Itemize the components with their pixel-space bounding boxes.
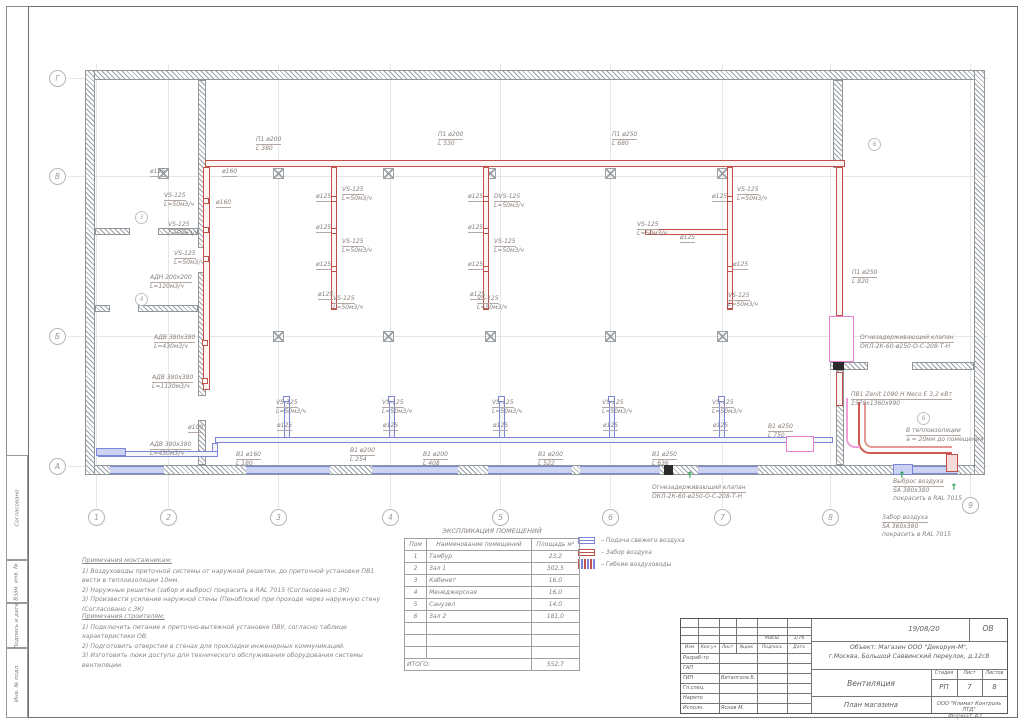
annotation-line: В теплоизоляции (906, 427, 961, 436)
annotation-line: VS-125 (737, 186, 759, 195)
titleblock-line (681, 703, 811, 704)
flex-duct-symbol (578, 559, 595, 569)
grid-bubble: 2 (160, 509, 177, 526)
annotation-line: L=50м3/ч (342, 247, 372, 254)
room-table-title: ЭКСПЛИКАЦИЯ ПОМЕЩЕНИЙ (404, 527, 580, 535)
annotation-line: L=50м3/ч (342, 195, 372, 202)
table-cell (531, 647, 579, 659)
titleblock-line (681, 673, 811, 674)
table-cell (405, 635, 427, 647)
table-row (405, 623, 580, 635)
drawing-title: План магазина (811, 701, 931, 709)
annotation-line: L=50м3/ч (737, 195, 767, 202)
titleblock-role: Нармто (683, 695, 718, 701)
annotation-label: VS-125L=50м3/ч (168, 221, 198, 238)
annotation-line: L=50м3/ч (494, 247, 524, 254)
annotation-label: ø125 (493, 422, 508, 431)
table-cell: Тамбур (427, 551, 532, 563)
annotation-label: VS-125L=50м3/ч (174, 250, 204, 267)
notes-line: 1) Воздуховоды приточной системы от нару… (82, 567, 392, 577)
total-value: 552,7 (531, 659, 579, 671)
titleblock-role: Гл.спец. (683, 685, 718, 691)
annotation-label: В1 ø250L 636 (652, 451, 677, 468)
annotation-label: Выброс воздухаSA 380х380покрасить в RAL … (893, 478, 962, 502)
room-explication-table: ЭКСПЛИКАЦИЯ ПОМЕЩЕНИЙ ПомНаименование по… (404, 527, 580, 671)
annotation-label: VS-125L=50м3/ч (342, 186, 372, 203)
annotation-label: VS-125L=50м3/ч (276, 399, 306, 416)
legend-label: – Забор воздуха (601, 549, 652, 556)
annotation-label: В1 ø250L 750 (768, 423, 793, 440)
doc-title: Вентиляция (811, 679, 931, 688)
annotation-label: ø125 (316, 261, 331, 270)
annotation-line: L=430м3/ч (154, 343, 188, 350)
annotation-line: L 408 (423, 460, 440, 467)
annotation-line: VS-125 (637, 221, 659, 230)
notes-title: Примечания строителям: (82, 612, 392, 622)
annotation-line: АДВ 380х380 (154, 334, 195, 343)
table-cell: 14,0 (531, 599, 579, 611)
stage-label: Стадия (931, 671, 957, 676)
annotation-label: ø125 (733, 261, 748, 270)
air-intake-grille (946, 454, 958, 472)
annotation-line: L=50м3/ч (712, 408, 742, 415)
annotation-label: ø125 (150, 168, 165, 177)
annotation-line: Выброс воздуха (893, 478, 944, 487)
notes-builders: Примечания строителям:1) Подключить пита… (82, 612, 392, 671)
wall-segment (85, 70, 95, 475)
annotation-line: АДВ 380х380 (150, 441, 191, 450)
grid-bubble: А (49, 458, 66, 475)
annotation-line: ø125 (712, 193, 727, 202)
annotation-line: L=430м3/ч (150, 450, 184, 457)
table-cell (427, 635, 532, 647)
annotation-line: АДН 200х200 (150, 274, 192, 283)
annotation-label: ø125 (316, 193, 331, 202)
grid-bubble: 5 (492, 509, 509, 526)
annotation-line: ø125 (316, 193, 331, 202)
annotation-line: L=50м3/ч (174, 259, 204, 266)
wall-segment (138, 305, 198, 312)
return-duct (212, 443, 218, 452)
annotation-line: VS-125 (164, 192, 186, 201)
title-date: 19/08/20 (881, 625, 967, 633)
table-cell: 16,0 (531, 575, 579, 587)
annotation-line: ø160 (222, 168, 237, 177)
table-cell: 1 (405, 551, 427, 563)
annotation-label: Забор воздухаSA 360х380покрасить в RAL 7… (882, 514, 951, 538)
grid-bubble: 8 (822, 509, 839, 526)
annotation-line: VS-125 (492, 399, 514, 408)
annotation-label: ПВ1 Zenit 1090 H Neco Е 3,2 кВт1570х1360… (851, 391, 952, 408)
annotation-line: ø125 (468, 261, 483, 270)
annotation-label: ø125 (680, 234, 695, 243)
annotation-line: VS-125 (342, 238, 364, 247)
grid-bubble: 1 (88, 509, 105, 526)
annotation-label: АДВ 380х380L=1130м3/ч (152, 374, 193, 391)
annotation-line: ø125 (316, 224, 331, 233)
titleblock-line (681, 653, 811, 654)
annotation-line: L=50м3/ч (602, 408, 632, 415)
grid-bubble: 7 (714, 509, 731, 526)
supply-duct-symbol (578, 537, 595, 544)
column (485, 331, 496, 342)
annotation-label: В1 ø200L 254 (350, 447, 375, 464)
titleblock-line (681, 663, 811, 664)
sheets-value: 8 (982, 683, 1007, 691)
annotation-label: ø125 (468, 224, 483, 233)
notes-line: вентиляции. (82, 661, 392, 671)
fire-damper (833, 362, 844, 370)
annotation-line: Огнезадерживающий клапан (652, 484, 746, 493)
table-cell (531, 635, 579, 647)
column (273, 168, 284, 179)
annotation-line: VS-125 (728, 292, 750, 301)
table-row: 6Зал 2181,0 (405, 611, 580, 623)
titleblock-line (681, 683, 811, 684)
table-total-row: ИТОГО:552,7 (405, 659, 580, 671)
legend-label: – Подача свежего воздуха (601, 537, 685, 544)
annotation-line: L 530 (438, 140, 455, 147)
table-cell: Кабинет (427, 575, 532, 587)
annotation-line: L 254 (350, 456, 367, 463)
annotation-label: VS-125L=50м3/ч (637, 221, 667, 238)
column (605, 331, 616, 342)
notes-title: Примечания монтажникам: (82, 556, 392, 566)
return-duct (215, 437, 833, 443)
window (110, 466, 164, 474)
annotation-line: ø125 (470, 291, 485, 300)
annotation-line: VS-125 (602, 399, 624, 408)
annotation-label: ø125 (318, 291, 333, 300)
table-cell (405, 647, 427, 659)
annotation-line: ø125 (316, 261, 331, 270)
table-row (405, 647, 580, 659)
annotation-label: VS-125L=50м3/ч (333, 295, 363, 312)
annotation-line: VS-125 (342, 186, 364, 195)
wall-segment (974, 70, 985, 475)
annotation-line: DVS-125 (494, 193, 520, 202)
table-row (405, 635, 580, 647)
sheets-label: Листов (982, 671, 1007, 676)
format-label: Формат А2 (948, 713, 982, 720)
legend: – Подача свежего воздуха– Забор воздуха–… (578, 534, 685, 570)
annotation-label: ø125 (383, 422, 398, 431)
annotation-line: SA 380х380 (893, 487, 929, 494)
object-line2: г.Москва, Большой Саввинский переулок, д… (813, 653, 1005, 660)
annotation-label: VS-125L=50м3/ч (164, 192, 194, 209)
annotation-line: АДВ 380х380 (152, 374, 193, 383)
supply-diffuser (331, 266, 337, 272)
annotation-label: ø100 (188, 424, 203, 433)
table-cell (427, 647, 532, 659)
annotation-label: АДВ 380х380L=430м3/ч (150, 441, 191, 458)
revision-header: Изм (681, 645, 698, 650)
annotation-label: П1 ø250L 820 (852, 269, 877, 286)
annotation-line: П1 ø200 (438, 131, 463, 140)
annotation-line: VS-125 (168, 221, 190, 230)
supply-duct (836, 167, 843, 316)
annotation-line: В1 ø250 (652, 451, 677, 460)
notes-installers: Примечания монтажникам:1) Воздуховоды пр… (82, 556, 392, 615)
column (383, 331, 394, 342)
supply-duct (331, 167, 337, 310)
annotation-line: В1 ø200 (423, 451, 448, 460)
annotation-line: ОКЛ-2К-60-ø250-О-С-208-Т-Н (652, 493, 742, 500)
table-cell: Зал 2 (427, 611, 532, 623)
annotation-line: П1 ø250 (852, 269, 877, 278)
annotation-line: ПВ1 Zenit 1090 H Neco Е 3,2 кВт (851, 391, 952, 400)
annotation-line: L 680 (612, 140, 629, 147)
revision-header: №док (736, 645, 757, 650)
titleblock-role: Исполн. (683, 705, 718, 711)
annotation-label: ø125 (468, 261, 483, 270)
annotation-line: ø125 (493, 422, 508, 431)
annotation-line: ø160 (216, 199, 231, 208)
room-number: 4 (135, 293, 148, 306)
supply-duct (836, 372, 843, 406)
annotation-line: ø125 (713, 422, 728, 431)
annotation-label: В1 ø200L 522 (538, 451, 563, 468)
supply-diffuser (483, 266, 489, 272)
intake-duct-symbol (578, 549, 595, 556)
table-cell: 3 (405, 575, 427, 587)
ahu-unit-pv1 (829, 316, 854, 362)
grid-bubble: 9 (962, 497, 979, 514)
grid-bubble: В (49, 168, 66, 185)
notes-line: вести в теплоизоляции 10мм. (82, 576, 392, 586)
legend-item: – Забор воздуха (578, 546, 685, 558)
notes-line: 2) Подготовить отверстия в стенах для пр… (82, 642, 392, 652)
wall-segment (912, 362, 974, 370)
annotation-line: покрасить в RAL 7015 (893, 495, 962, 502)
table-header: Пом (405, 539, 427, 551)
supply-diffuser (483, 228, 489, 234)
annotation-line: В1 ø200 (350, 447, 375, 456)
column (273, 331, 284, 342)
supply-diffuser (202, 340, 208, 346)
titleblock-name: Яснов М. (721, 705, 756, 711)
annotation-line: ø125 (318, 291, 333, 300)
annotation-line: L=50м3/ч (168, 230, 198, 237)
notes-line: 3) Произвести усиление наружной стены (П… (82, 595, 392, 605)
scale-label: Масш (757, 636, 787, 641)
drawing-sheet: Согласовано Взам. инв. № Подпись и дата … (0, 0, 1024, 724)
table-cell: Зал 1 (427, 563, 532, 575)
annotation-line: L=50м3/ч (477, 304, 507, 311)
annotation-label: АДН 200х200L=120м3/ч (150, 274, 192, 291)
wall-segment (95, 228, 130, 235)
annotation-line: VS-125 (174, 250, 196, 259)
legend-item: – Подача свежего воздуха (578, 534, 685, 546)
annotation-label: ø160 (222, 168, 237, 177)
grid-bubble: 4 (382, 509, 399, 526)
column (717, 331, 728, 342)
annotation-label: В1 ø200L 408 (423, 451, 448, 468)
annotation-line: П1 ø200 (256, 136, 281, 145)
annotation-line: L=50м3/ч (494, 202, 524, 209)
table-row: 1Тамбур23,2 (405, 551, 580, 563)
supply-diffuser (331, 228, 337, 234)
room-number: 6 (868, 138, 881, 151)
annotation-label: VS-125L=50м3/ч (737, 186, 767, 203)
column (383, 168, 394, 179)
notes-line: 1) Подключить питание к приточно-вытяжно… (82, 623, 392, 633)
annotation-line: В1 ø250 (768, 423, 793, 432)
annotation-line: ø125 (277, 422, 292, 431)
table-cell: 181,0 (531, 611, 579, 623)
annotation-label: В1 ø160L 180 (236, 451, 261, 468)
table-cell: 16,0 (531, 587, 579, 599)
title-code: ОВ (969, 624, 1007, 633)
table-row: 5Санузел14,0 (405, 599, 580, 611)
wall-segment (85, 70, 985, 80)
legend-item: – Гибкие воздуховоды (578, 558, 685, 570)
annotation-line: П1 ø250 (612, 131, 637, 140)
sheet-label: Лист (957, 671, 982, 676)
supply-diffuser (203, 227, 209, 233)
titleblock-line (681, 627, 811, 628)
annotation-line: L=50м3/ч (637, 230, 667, 237)
annotation-line: L=50м3/ч (276, 408, 306, 415)
grid-bubble: Б (49, 328, 66, 345)
titleblock-line (681, 635, 811, 636)
annotation-line: VS-125 (333, 295, 355, 304)
annotation-label: VS-125L=50м3/ч (602, 399, 632, 416)
annotation-line: L 180 (236, 460, 253, 467)
company-name: ООО "Климат Контроль ЛТД" (932, 701, 1006, 713)
annotation-line: L 750 (768, 432, 785, 439)
supply-diffuser (203, 198, 209, 204)
annotation-line: В1 ø200 (538, 451, 563, 460)
annotation-line: ø125 (150, 168, 165, 177)
titleblock-line (787, 653, 788, 713)
annotation-label: VS-125L=50м3/ч (494, 238, 524, 255)
table-cell: 6 (405, 611, 427, 623)
window (698, 466, 758, 474)
annotation-label: VS-125L=50м3/ч (342, 238, 372, 255)
intake-grille-tambour (96, 448, 126, 456)
titleblock-line (681, 693, 811, 694)
supply-diffuser (202, 378, 208, 384)
annotation-line: Забор воздуха (882, 514, 928, 523)
window (580, 466, 660, 474)
supply-diffuser (727, 196, 733, 202)
annotation-line: ø125 (603, 422, 618, 431)
annotation-line: ø125 (733, 261, 748, 270)
grid-bubble: Г (49, 70, 66, 87)
annotation-label: ø160 (216, 199, 231, 208)
annotation-line: L=50м3/ч (164, 201, 194, 208)
supply-diffuser (331, 196, 337, 202)
annotation-line: L 380 (256, 145, 273, 152)
table-header: Наименование помещений (427, 539, 532, 551)
annotation-line: Огнезадерживающий клапан (860, 334, 954, 343)
table-row: 3Кабинет16,0 (405, 575, 580, 587)
annotation-label: VS-125L=50м3/ч (728, 292, 758, 309)
annotation-line: L=1130м3/ч (152, 383, 190, 390)
annotation-label: АДВ 380х380L=430м3/ч (154, 334, 195, 351)
annotation-line: L=50м3/ч (382, 408, 412, 415)
annotation-line: ОКЛ-2К-60-ø250-О-С-208-Т-Н (860, 343, 950, 350)
annotation-label: VS-125L=50м3/ч (382, 399, 412, 416)
annotation-line: VS-125 (276, 399, 298, 408)
annotation-line: SA 360х380 (882, 523, 918, 530)
title-block: 19/08/20 ОВ Объект: Магазин ООО "Декорум… (680, 618, 1008, 714)
titleblock-role: ГИП (683, 675, 718, 681)
notes-line: 3) Изготовить люки доступа для техническ… (82, 651, 392, 661)
sheet-value: 7 (957, 683, 982, 691)
table-cell: Санузел (427, 599, 532, 611)
table-cell (427, 623, 532, 635)
table-cell: 4 (405, 587, 427, 599)
annotation-label: VS-125L=50м3/ч (712, 399, 742, 416)
air-flow-arrow: ↑ (686, 472, 695, 481)
notes-line: 2) Наружные решетки (забор и выброс) пок… (82, 586, 392, 596)
table-row: 4Менеджерская16,0 (405, 587, 580, 599)
annotation-label: DVS-125L=50м3/ч (494, 193, 524, 210)
annotation-line: VS-125 (382, 399, 404, 408)
annotation-label: Огнезадерживающий клапанОКЛ-2К-60-ø250-О… (860, 334, 954, 351)
annotation-line: покрасить в RAL 7015 (882, 531, 951, 538)
table-cell: 302,5 (531, 563, 579, 575)
annotation-label: ø125 (316, 224, 331, 233)
annotation-line: ø125 (680, 234, 695, 243)
table-cell: 5 (405, 599, 427, 611)
table-cell: 2 (405, 563, 427, 575)
table-cell (531, 623, 579, 635)
annotation-label: П1 ø200L 380 (256, 136, 281, 153)
supply-duct (483, 167, 489, 310)
annotation-label: В теплоизоляцииа = 20мм до помещения (906, 427, 983, 444)
supply-diffuser (483, 196, 489, 202)
annotation-line: L=50м3/ч (728, 301, 758, 308)
titleblock-role: Разраб-то (683, 655, 718, 661)
stage-value: РП (931, 683, 957, 691)
annotation-line: 1570х1360х990 (851, 400, 900, 407)
annotation-label: ø125 (603, 422, 618, 431)
annotation-label: П1 ø200L 530 (438, 131, 463, 148)
room-number: 6 (917, 412, 930, 425)
annotation-label: ø125 (470, 291, 485, 300)
grid-axis-vertical (96, 64, 97, 508)
annotation-line: L=50м3/ч (333, 304, 363, 311)
table-header: Площадь м² (531, 539, 579, 551)
notes-line: характеристики ОВ. (82, 632, 392, 642)
titleblock-line (757, 653, 758, 713)
grid-bubble: 3 (270, 509, 287, 526)
table-cell: Менеджерская (427, 587, 532, 599)
supply-duct (727, 167, 733, 310)
grid-bubble: 6 (602, 509, 619, 526)
annotation-label: Огнезадерживающий клапанОКЛ-2К-60-ø250-О… (652, 484, 746, 501)
annotation-label: ø125 (712, 193, 727, 202)
supply-duct (205, 160, 845, 167)
table-cell: 23,2 (531, 551, 579, 563)
annotation-label: ø125 (468, 193, 483, 202)
annotation-line: В1 ø160 (236, 451, 261, 460)
column (605, 168, 616, 179)
scale-value: 1/76 (787, 636, 811, 641)
annotation-line: VS-125 (712, 399, 734, 408)
annotation-label: ø125 (713, 422, 728, 431)
annotation-line: ø125 (468, 224, 483, 233)
annotation-line: ø125 (383, 422, 398, 431)
revision-header: Дата (787, 645, 811, 650)
total-label: ИТОГО: (405, 659, 532, 671)
titleblock-role: ГАП (683, 665, 718, 671)
annotation-label: ø125 (277, 422, 292, 431)
annotation-line: L=50м3/ч (492, 408, 522, 415)
